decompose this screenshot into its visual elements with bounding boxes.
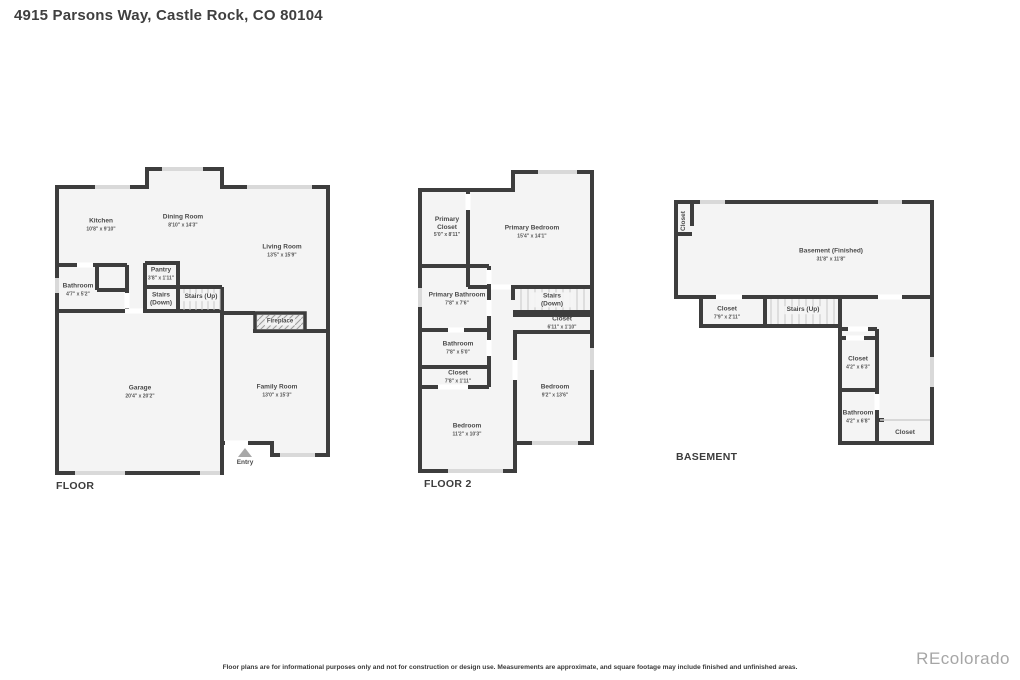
room-label-bathroom-floor1: Bathroom 4'7" x 5'2" [63, 283, 94, 298]
room-label-bedroom-left: Bedroom 11'2" x 10'3" [452, 423, 481, 438]
floor-plan-page: 4915 Parsons Way, Castle Rock, CO 80104 [0, 0, 1020, 680]
basement-footprint [676, 202, 932, 443]
room-label-closet-mid-basement: Closet 4'2" x 6'3" [846, 356, 870, 371]
room-label-closet-stairs: Closet 7'9" x 2'11" [714, 306, 740, 321]
room-label-bathroom-basement: Bathroom 4'2" x 6'8" [843, 410, 874, 425]
floorplan-basement-drawing [672, 198, 936, 450]
room-label-closet-bottom-right: Closet [895, 429, 915, 437]
floor2-label: FLOOR 2 [424, 478, 472, 490]
room-label-primary-closet: Primary Closet 5'0" x 8'11" [426, 216, 468, 238]
room-label-fireplace: Fireplace [265, 318, 295, 325]
basement-label: BASEMENT [676, 451, 737, 463]
room-label-garage: Garage 20'4" x 20'2" [125, 385, 154, 400]
room-label-closet-hall-floor2: Closet 6'11" x 1'10" [547, 316, 576, 331]
room-label-stairs-down-floor1: Stairs (Down) [144, 291, 178, 306]
page-title: 4915 Parsons Way, Castle Rock, CO 80104 [14, 7, 323, 24]
floorplan-first-floor: Kitchen 10'8" x 9'10" Dining Room 8'10" … [55, 163, 332, 488]
entry-direction-icon [238, 448, 252, 457]
room-label-basement-finished: Basement (Finished) 31'8" x 11'8" [799, 248, 863, 263]
watermark-logo: REcolorado [916, 649, 1010, 669]
room-label-stairs-up-basement: Stairs (Up) [785, 306, 822, 314]
room-label-family-room: Family Room 13'0" x 15'3" [257, 384, 298, 399]
floorplan-second-floor: Primary Closet 5'0" x 8'11" Primary Bedr… [418, 170, 595, 480]
floorplan-basement: Closet Basement (Finished) 31'8" x 11'8"… [672, 198, 936, 450]
room-label-stairs-down-floor2: Stairs (Down) [531, 292, 574, 307]
room-label-closet-vertical: Closet [680, 211, 688, 231]
room-label-kitchen: Kitchen 10'8" x 9'10" [86, 218, 115, 233]
room-label-dining-room: Dining Room 8'10" x 14'3" [163, 214, 203, 229]
room-label-bedroom-right: Bedroom 9'2" x 13'6" [541, 384, 570, 399]
floor1-label: FLOOR [56, 480, 94, 492]
room-label-closet-bathroom-floor2: Closet 7'8" x 1'11" [445, 370, 471, 385]
room-label-primary-bathroom: Primary Bathroom 7'8" x 7'6" [417, 292, 497, 307]
room-label-pantry: Pantry 3'8" x 1'11" [148, 267, 174, 282]
room-label-living-room: Living Room 13'5" x 15'9" [262, 244, 301, 259]
room-label-primary-bedroom: Primary Bedroom 15'4" x 14'1" [505, 225, 560, 240]
room-label-entry: Entry [237, 459, 254, 467]
disclaimer-text: Floor plans are for informational purpos… [0, 664, 1020, 671]
room-label-stairs-up-floor1: Stairs (Up) [183, 293, 220, 301]
room-label-bathroom-floor2: Bathroom 7'8" x 5'0" [443, 341, 474, 356]
